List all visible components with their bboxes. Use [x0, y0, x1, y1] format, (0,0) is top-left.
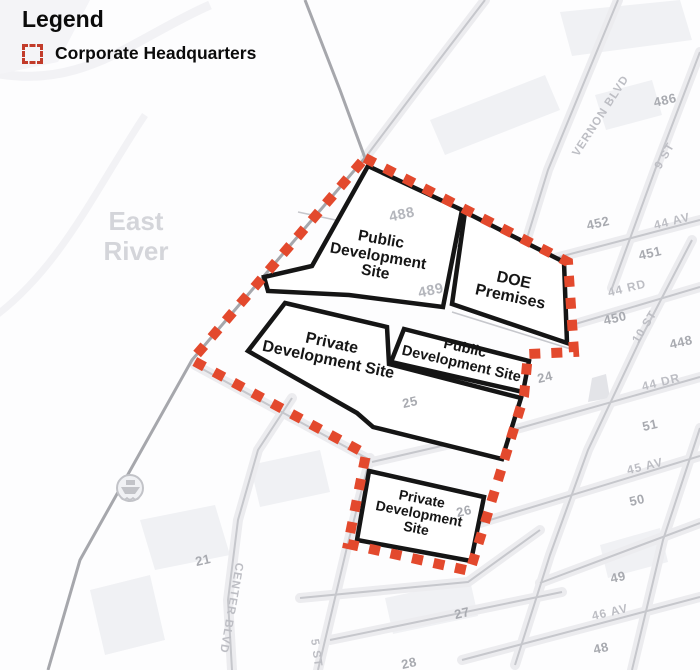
map-canvas: East River PublicDevelopmentSite DOEPrem… [0, 0, 700, 670]
east-river-label: East River [103, 207, 168, 267]
block-28: 28 [400, 654, 418, 670]
legend-title: Legend [22, 6, 256, 33]
legend: Legend Corporate Headquarters [22, 6, 256, 64]
corporate-headquarters-swatch-icon [22, 44, 43, 64]
ferry-icon [117, 475, 143, 501]
legend-row: Corporate Headquarters [22, 43, 256, 64]
legend-item-label: Corporate Headquarters [55, 43, 256, 64]
base-map [0, 0, 700, 670]
